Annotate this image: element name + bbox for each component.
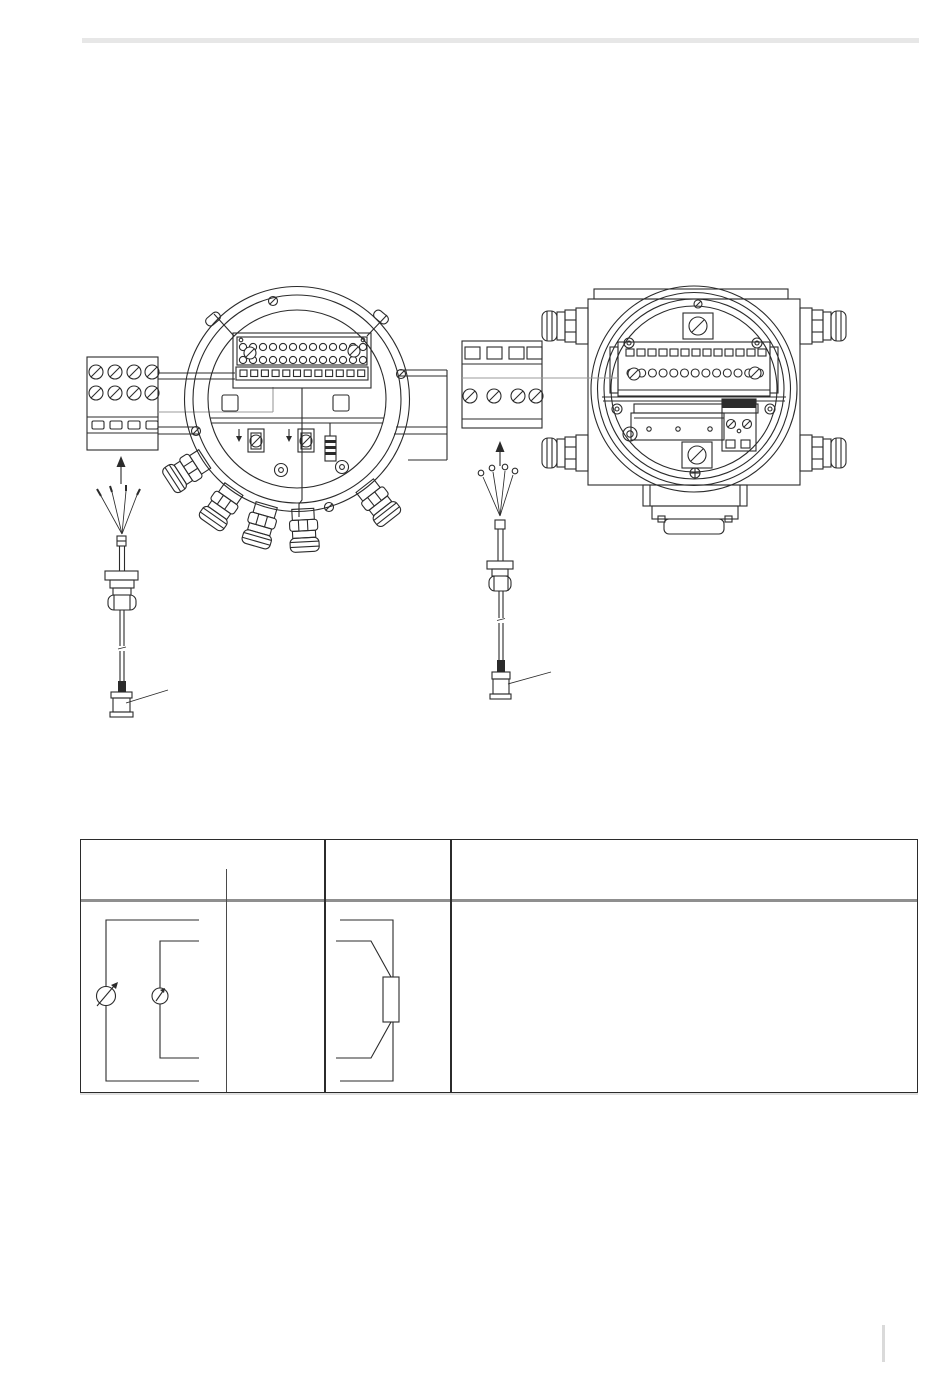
housing-interior	[210, 388, 384, 517]
sensor-cable	[478, 441, 551, 699]
figure-right-housing	[455, 278, 870, 708]
table-col-header-3	[450, 840, 917, 899]
table-col-header-2	[324, 840, 450, 899]
terminal-block-detail	[87, 357, 159, 450]
table-divider-2	[450, 840, 452, 1092]
terminal-strip	[214, 314, 387, 388]
table-header-separator	[81, 899, 917, 902]
table-divider-1	[324, 840, 326, 1092]
terminal-strip	[610, 338, 778, 396]
connector-leader-line	[508, 672, 551, 684]
housing-ring	[185, 287, 410, 512]
table-subdivider	[226, 869, 227, 1092]
housing-body	[542, 286, 846, 492]
header-rule	[82, 38, 919, 43]
manual-page	[0, 0, 950, 1378]
cable-glands	[161, 447, 403, 553]
table-col-header-1	[81, 840, 324, 899]
circuit-source-meter-symbol	[85, 905, 215, 1090]
figure-left-housing	[75, 278, 470, 723]
circuit-resistor-symbol	[330, 905, 405, 1090]
footer-page-tick	[882, 1325, 885, 1362]
sensor-cable	[97, 456, 168, 717]
